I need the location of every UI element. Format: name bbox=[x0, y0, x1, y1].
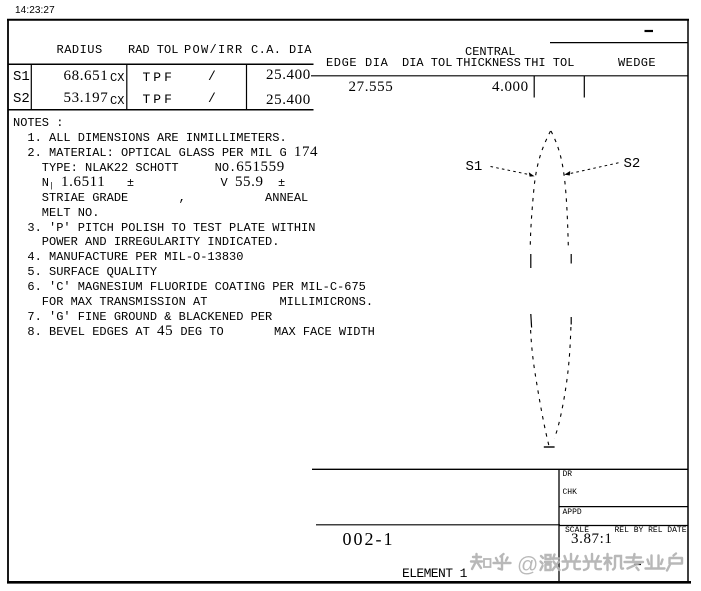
svg-text:@: @ bbox=[517, 554, 538, 577]
